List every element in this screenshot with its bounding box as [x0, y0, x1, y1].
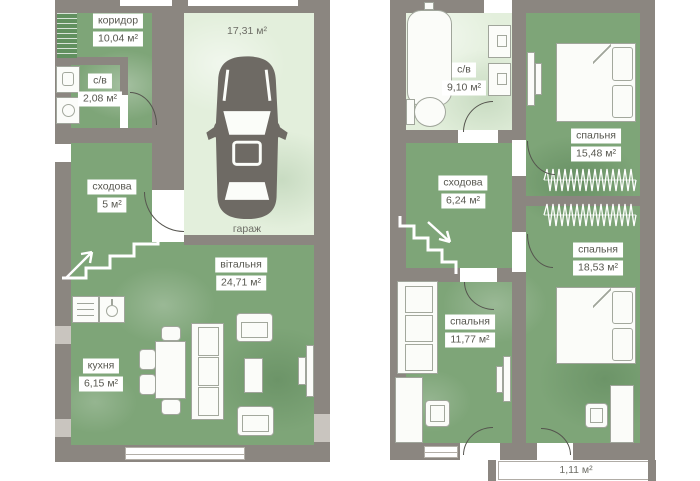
faucet-icon [424, 2, 434, 10]
room-area: 18,53 м² [573, 261, 623, 276]
room-label-bathroom: с/в 9,10 м² [442, 63, 486, 96]
room-label-bedroom-top: спальня 15,48 м² [571, 129, 621, 162]
room-name: кухня [83, 359, 120, 374]
radiator-icon [542, 166, 638, 194]
room-name: спальня [445, 315, 495, 330]
sofa-icon [191, 323, 224, 420]
car-icon [197, 52, 297, 222]
wall [640, 0, 655, 460]
chair-icon [139, 374, 156, 395]
chair-icon [585, 403, 608, 428]
door-gap [460, 268, 497, 282]
chair-icon [161, 326, 181, 341]
tv-stand-icon [535, 63, 542, 95]
boiler-icon [57, 13, 77, 58]
window [125, 447, 245, 460]
room-name: вітальня [215, 258, 267, 273]
floorplan-canvas: коридор 10,04 м² с/в 2,08 м² сходова 5 м… [0, 0, 700, 481]
bed-icon [556, 43, 636, 122]
door-gap [120, 0, 172, 6]
room-area: 2,08 м² [78, 92, 122, 107]
tv-stand-icon [298, 357, 306, 385]
garage-door-gap [188, 0, 298, 6]
door-gap [484, 0, 512, 13]
chair-icon [139, 349, 156, 370]
stove-icon [72, 296, 99, 323]
window [314, 414, 330, 442]
toilet-icon [414, 97, 446, 127]
room-area: 24,71 м² [216, 276, 266, 291]
room-area: 6,15 м² [79, 377, 123, 392]
room-label-living: вітальня 24,71 м² [215, 258, 267, 291]
room-name: сходова [438, 176, 487, 191]
coffee-table-icon [244, 358, 263, 393]
room-name: с/в [452, 63, 476, 78]
room-label-stairwell: сходова 5 м² [87, 180, 136, 213]
dining-table-icon [155, 341, 186, 399]
door-gap [512, 232, 526, 272]
balcony-post [488, 460, 496, 481]
room-area: 9,10 м² [442, 81, 486, 96]
cabinet-icon [488, 63, 511, 96]
wall [512, 0, 526, 445]
room-area: 10,04 м² [93, 32, 143, 47]
desk-icon [610, 385, 634, 443]
washing-machine-icon [56, 66, 80, 93]
window [55, 326, 71, 344]
room-label-stairwell: сходова 6,24 м² [438, 176, 487, 209]
stairs-icon [58, 226, 186, 284]
balcony-post [648, 460, 656, 481]
sofa-icon [397, 281, 438, 374]
armchair-icon [236, 313, 273, 342]
cabinet-icon [488, 25, 511, 58]
room-name: с/в [88, 74, 112, 89]
tv-icon [306, 345, 314, 397]
window [55, 144, 71, 162]
wall [55, 128, 165, 143]
wall [152, 0, 184, 190]
window [424, 446, 458, 458]
radiator-icon [542, 201, 638, 229]
wall [55, 57, 128, 65]
garage-name-label: гараж [233, 223, 261, 235]
room-label-bedroom-left: спальня 11,77 м² [445, 315, 495, 348]
chair-icon [425, 400, 450, 427]
room-label-bathroom: с/в 2,08 м² [78, 74, 122, 107]
room-area: 6,24 м² [441, 194, 485, 209]
door-gap [512, 140, 526, 176]
room-label-kitchen: кухня 6,15 м² [79, 359, 123, 392]
window [55, 419, 71, 437]
kitchen-sink-icon [99, 296, 125, 323]
wall [314, 0, 330, 462]
sink-icon [56, 97, 80, 124]
balcony-area-label: 1,11 м² [559, 464, 592, 476]
tv-stand-icon [496, 366, 503, 393]
stairs-icon [398, 216, 460, 276]
garage-area-label: 17,31 м² [227, 25, 267, 37]
armchair-icon [237, 406, 274, 436]
bed-icon [556, 287, 636, 364]
room-area: 11,77 м² [445, 333, 494, 348]
desk-icon [395, 377, 423, 443]
room-label-corridor: коридор 10,04 м² [93, 14, 143, 47]
room-name: коридор [93, 14, 143, 29]
room-name: спальня [573, 243, 623, 258]
room-area: 15,48 м² [571, 147, 621, 162]
room-label-bedroom-right: спальня 18,53 м² [573, 243, 623, 276]
room-name: спальня [571, 129, 621, 144]
wall [184, 235, 314, 245]
room-name: сходова [87, 180, 136, 195]
chair-icon [161, 399, 181, 415]
tv-icon [503, 356, 511, 402]
tv-icon [527, 52, 535, 106]
room-area: 5 м² [97, 198, 126, 213]
